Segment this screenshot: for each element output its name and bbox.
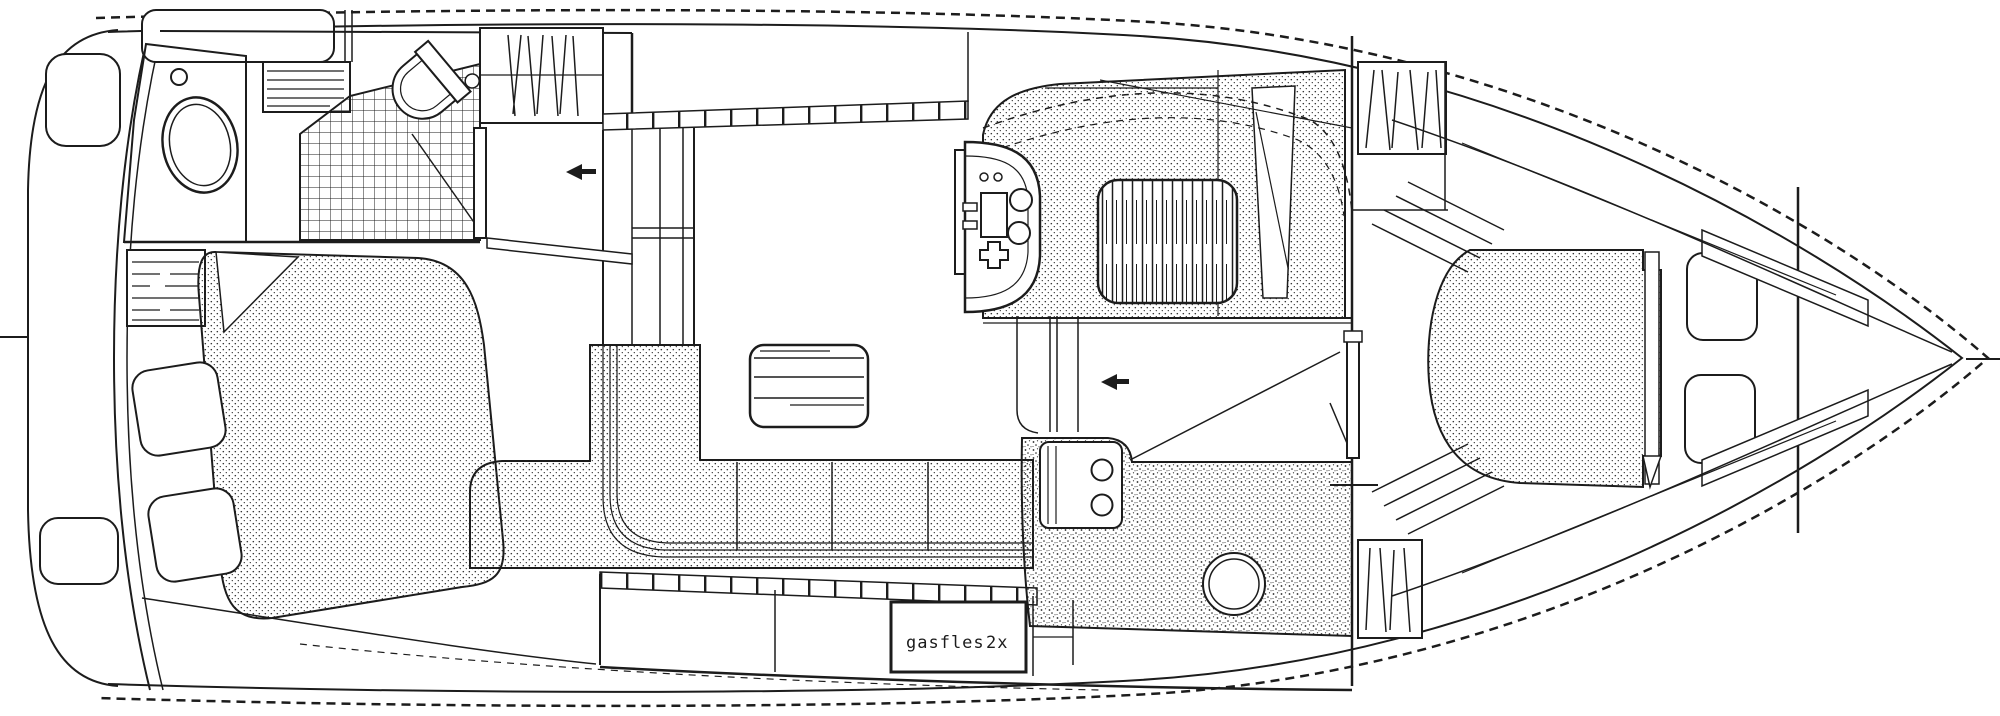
helm-station (955, 70, 1352, 323)
aft-berth-pillow-1 (130, 360, 228, 458)
salon-table (750, 345, 868, 427)
bow-cabin-door-leaf (1347, 338, 1359, 458)
salon (470, 345, 1033, 568)
entry-arrow-aft-companionway (566, 164, 596, 180)
transom-inner-line (127, 26, 163, 690)
console-back-panel (955, 150, 965, 274)
console-display (981, 193, 1007, 237)
gas-locker-label: gasfles (906, 633, 985, 653)
starboard-forward-wardrobe (1352, 62, 1448, 210)
galley (1017, 316, 1352, 676)
entry-arrow-galley-companionway (1101, 374, 1129, 390)
wash-basin (154, 90, 246, 199)
aft-wardrobe (480, 28, 603, 123)
louvered-locker-side (127, 250, 205, 326)
bathroom-door-leaf (474, 128, 486, 238)
gauge-dial-2 (1008, 222, 1030, 244)
platform-step-bottom (40, 518, 118, 584)
bow-cabin-door (1344, 331, 1362, 458)
aft-berth-pillow-2 (146, 486, 244, 584)
v-berth (1428, 250, 1661, 487)
louvered-locker-top (263, 62, 350, 112)
helm-console (955, 142, 1040, 312)
faucet (171, 69, 187, 85)
helm-seat (1098, 180, 1237, 303)
aft-cabin-door-leaf (487, 238, 632, 264)
gas-locker-count: 2x (986, 633, 1008, 653)
window-band-port (600, 572, 1037, 605)
gauge-dial-1 (1010, 189, 1032, 211)
deck-plan-canvas: gasfles 2x (0, 0, 2000, 716)
stove (1040, 442, 1122, 528)
window-band-starboard (603, 101, 968, 130)
bow-cabin (1392, 120, 1952, 596)
hull-chine-line-aft (142, 598, 596, 664)
platform-step-top (46, 54, 120, 146)
boat-floor-plan: gasfles 2x (0, 0, 2000, 716)
gas-locker: gasfles 2x (891, 602, 1026, 672)
berth-headboard (1645, 252, 1659, 484)
galley-sink (1203, 553, 1265, 615)
